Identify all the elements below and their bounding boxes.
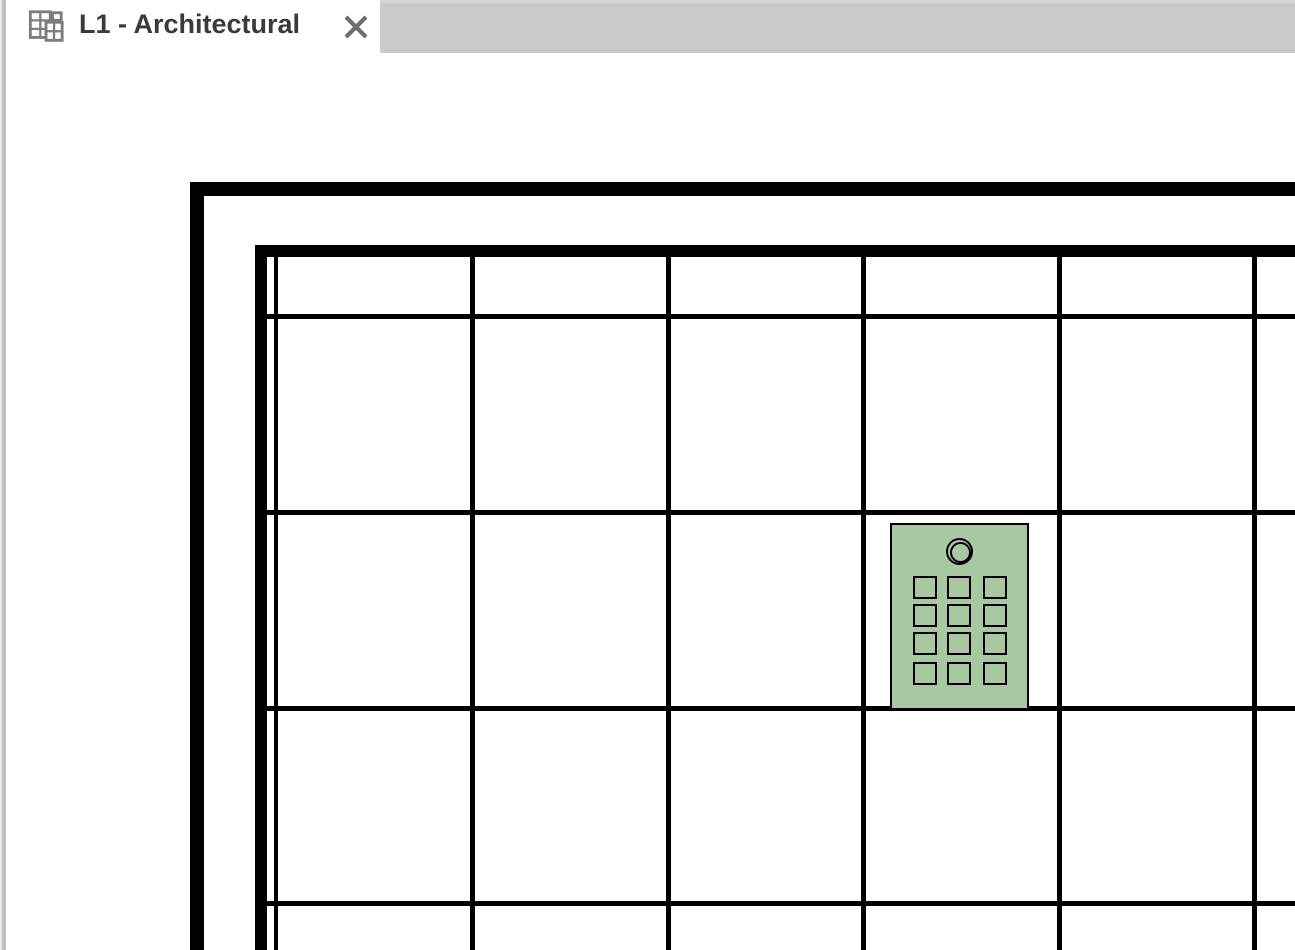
ceiling-grid-line-horizontal[interactable] [267,314,1295,319]
ceiling-grid-line-horizontal[interactable] [267,510,1295,515]
outer-wall-left[interactable] [190,182,204,950]
drawing-canvas[interactable] [0,0,1295,950]
panel-grid-cell [913,662,937,685]
ceiling-grid-line-horizontal[interactable] [267,901,1295,906]
ceiling-grid-line-vertical[interactable] [1252,257,1257,950]
panel-grid-cell [947,632,971,655]
view-tab-title: L1 - Architectural [79,0,300,51]
panel-circle-symbol-inner [950,542,971,563]
panel-grid-cell [947,662,971,685]
ceiling-grid-line-vertical[interactable] [470,257,475,950]
inner-wall-top[interactable] [255,245,1295,257]
inner-wall-left[interactable] [255,245,267,950]
view-tab-l1-architectural[interactable]: L1 - Architectural [6,0,380,53]
revit-view-window: L1 - Architectural [0,0,1295,950]
panel-grid-cell [913,632,937,655]
panel-grid-cell [983,662,1007,685]
panel-grid-cell [983,604,1007,627]
ceiling-grid-line-vertical[interactable] [1057,257,1062,950]
panel-splitter[interactable] [0,0,6,950]
ceiling-grid-line-vertical[interactable] [666,257,671,950]
panel-grid-cell [913,604,937,627]
outer-wall-top[interactable] [190,182,1295,196]
panel-grid-cell [913,576,937,599]
ceiling-grid-line-horizontal[interactable] [267,706,1295,711]
ceiling-grid-line-vertical[interactable] [861,257,866,950]
panel-grid-cell [947,604,971,627]
view-tab-bar: L1 - Architectural [0,0,1295,53]
panel-grid-cell [947,576,971,599]
panel-grid-cell [983,632,1007,655]
floor-plan-view-icon [27,8,65,46]
ceiling-grid-line-vertical[interactable] [274,257,278,950]
close-icon[interactable] [342,13,370,41]
panel-grid-cell [983,576,1007,599]
